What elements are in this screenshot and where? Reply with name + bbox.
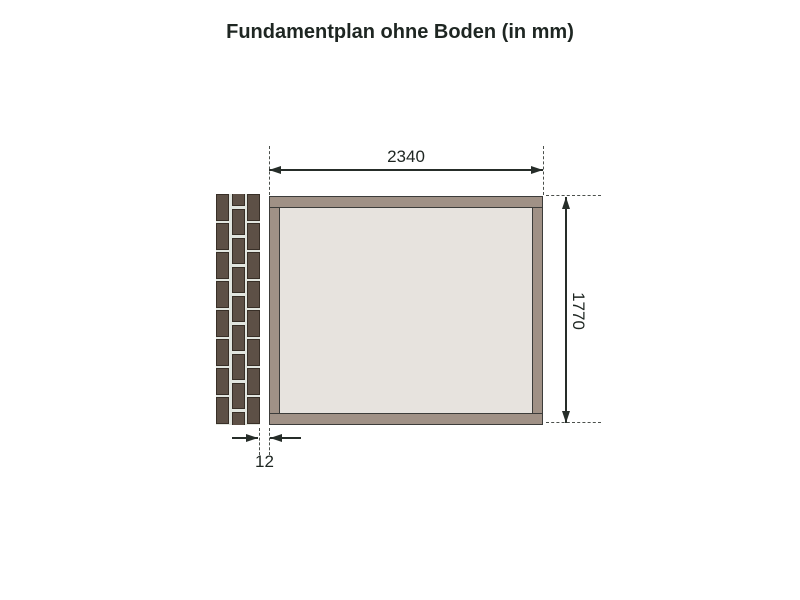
- dimension-width-label: 2340: [269, 147, 543, 167]
- brick: [247, 368, 260, 395]
- brick: [232, 412, 245, 426]
- brick: [247, 310, 260, 337]
- arrowhead-right-icon: [531, 166, 543, 174]
- brick: [232, 238, 245, 265]
- brick: [216, 252, 229, 279]
- dimension-line-gap-left: [232, 437, 258, 439]
- dimension-height-label: 1770: [568, 292, 588, 330]
- brick: [216, 310, 229, 337]
- brick: [232, 383, 245, 410]
- extension-line-height-top: [546, 195, 601, 196]
- dimension-line-height: [565, 197, 567, 423]
- foundation-interior: [279, 207, 533, 414]
- dimension-line-width: [269, 169, 543, 171]
- page-title: Fundamentplan ohne Boden (in mm): [0, 21, 800, 44]
- arrowhead-down-icon: [562, 411, 570, 423]
- brick: [232, 209, 245, 236]
- brick: [247, 339, 260, 366]
- brick: [232, 354, 245, 381]
- brick: [232, 325, 245, 352]
- frame-board-joint-top: [270, 207, 542, 208]
- brick: [247, 281, 260, 308]
- extension-line-height-bottom: [546, 422, 601, 423]
- dimension-line-gap-right: [270, 437, 301, 439]
- foundation-frame: [269, 196, 543, 425]
- brick: [247, 223, 260, 250]
- arrowhead-right-icon: [246, 434, 258, 442]
- brick-wall: [216, 194, 260, 425]
- arrowhead-up-icon: [562, 197, 570, 209]
- brick: [232, 194, 245, 206]
- extension-line-gap-left: [259, 428, 260, 455]
- brick: [247, 252, 260, 279]
- brick: [232, 267, 245, 294]
- extension-line-width-right: [543, 146, 544, 195]
- brick: [216, 223, 229, 250]
- brick: [247, 397, 260, 424]
- brick: [232, 296, 245, 323]
- brick: [216, 281, 229, 308]
- dimension-gap-label: 12: [244, 452, 285, 472]
- frame-board-joint-bottom: [270, 413, 542, 414]
- brick: [247, 194, 260, 221]
- brick: [216, 368, 229, 395]
- arrowhead-left-icon: [269, 166, 281, 174]
- foundation-plan-canvas: Fundamentplan ohne Boden (in mm) 2340 17…: [0, 0, 800, 600]
- brick: [216, 397, 229, 424]
- arrowhead-left-icon: [270, 434, 282, 442]
- brick: [216, 339, 229, 366]
- brick: [216, 194, 229, 221]
